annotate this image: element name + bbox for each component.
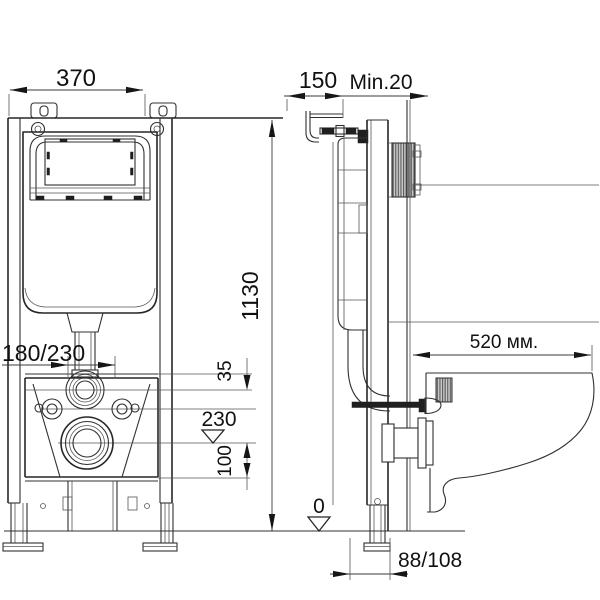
- frame-legs-side: [364, 499, 390, 552]
- dim-frame-width: 370: [56, 65, 96, 92]
- drain-pipe-front: [68, 481, 117, 531]
- dim-drain-axis-height: 230: [201, 408, 236, 431]
- mounting-tab-left: [31, 103, 57, 118]
- side-view: [306, 100, 599, 551]
- cistern-tank: [23, 132, 157, 313]
- mounting-tab-right: [150, 103, 176, 118]
- access-window: [30, 136, 150, 200]
- frame-rail-profile: [367, 120, 388, 531]
- dim-inlet-offset: 35: [215, 360, 236, 381]
- dim-flush-pipe-offset: 180/230: [2, 340, 85, 366]
- cistern-profile: [338, 138, 367, 330]
- bowl-flush-connector: [436, 378, 452, 402]
- mounting-stud: [352, 398, 441, 414]
- front-view: [3, 103, 283, 551]
- dim-drain-bottom-offset: 100: [215, 445, 236, 477]
- frame-legs-front: [3, 497, 177, 551]
- dimension-labels: 370 150 Min.20 1130 180/230 35 230 100 0…: [2, 65, 538, 572]
- wall-bracket: [306, 111, 343, 142]
- top-screw-left: [32, 123, 45, 136]
- dim-min-wall-thickness: Min.20: [349, 71, 412, 94]
- technical-drawing: 370 150 Min.20 1130 180/230 35 230 100 0…: [0, 0, 600, 600]
- flush-elbow: [348, 330, 390, 411]
- flush-plate-spacer: [388, 143, 421, 197]
- dim-outlet-offset: 88/108: [398, 549, 462, 572]
- dim-bowl-depth: 520 мм.: [470, 332, 538, 353]
- dim-floor-level: 0: [313, 495, 325, 518]
- technical-drawing-page: 370 150 Min.20 1130 180/230 35 230 100 0…: [0, 0, 600, 600]
- dim-frame-height: 1130: [237, 271, 263, 320]
- dim-frame-depth: 150: [299, 67, 337, 93]
